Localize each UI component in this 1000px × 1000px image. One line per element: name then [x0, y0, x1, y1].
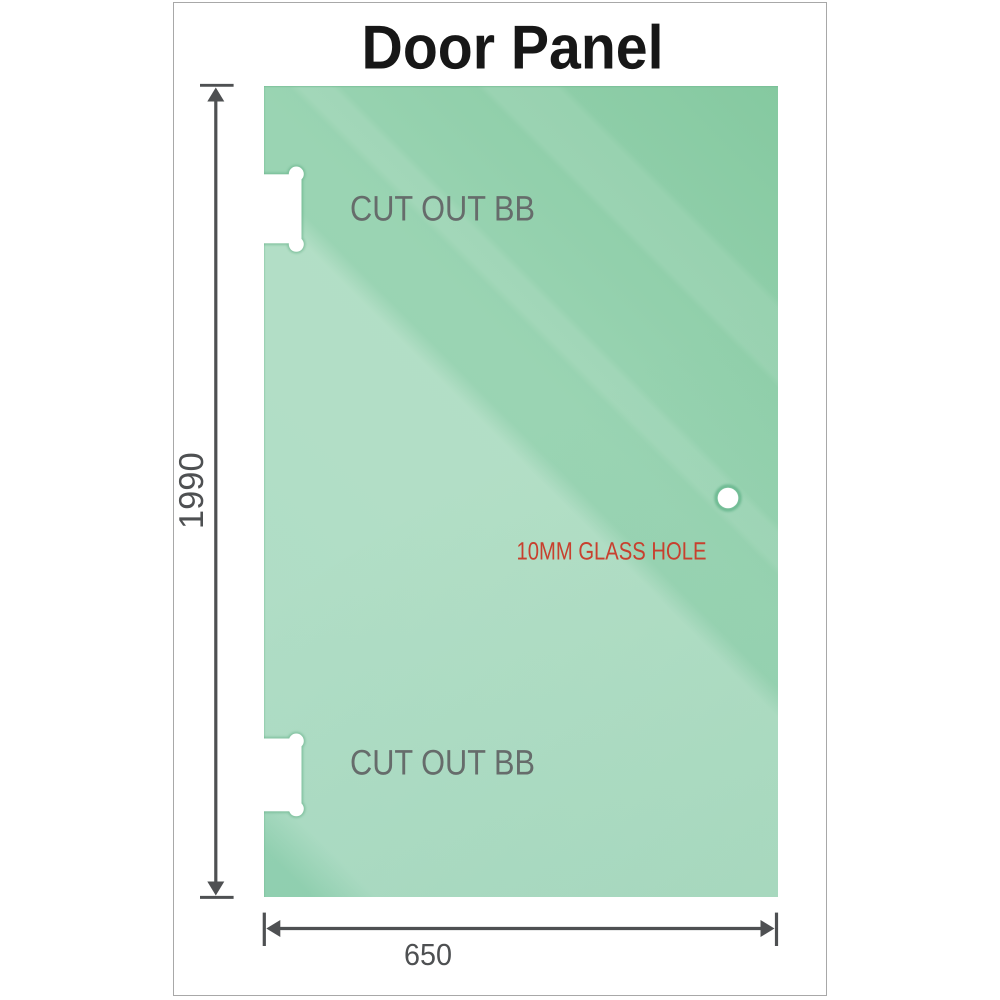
svg-text:650: 650: [404, 938, 452, 972]
svg-text:Door Panel: Door Panel: [362, 13, 664, 82]
svg-text:10MM GLASS HOLE: 10MM GLASS HOLE: [517, 538, 707, 566]
svg-text:CUT OUT BB: CUT OUT BB: [350, 742, 535, 782]
svg-text:CUT OUT BB: CUT OUT BB: [350, 189, 535, 229]
svg-text:1990: 1990: [173, 452, 211, 529]
